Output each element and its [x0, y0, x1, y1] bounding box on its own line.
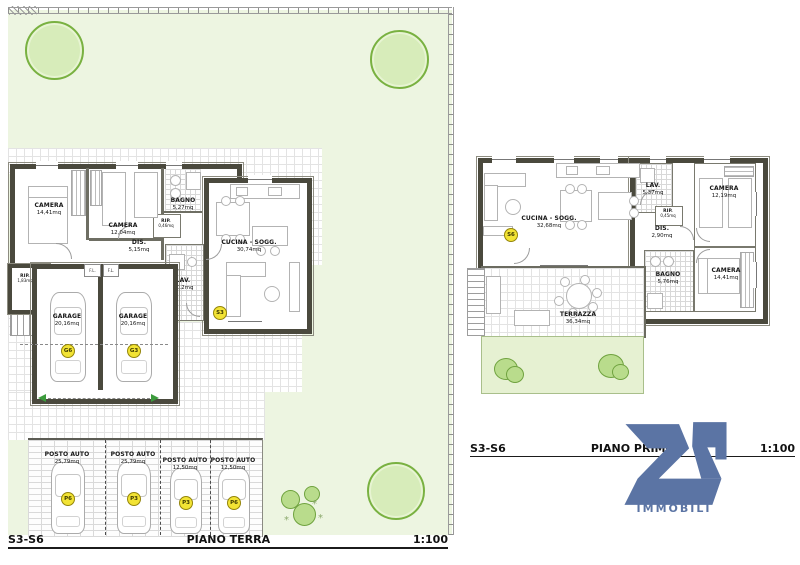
room-label: RIP. 0,45mq [655, 209, 681, 219]
kitchen-island [598, 192, 632, 220]
chair [565, 184, 575, 194]
window [248, 175, 272, 183]
window [650, 155, 666, 163]
shower [186, 172, 201, 190]
chair [580, 275, 590, 285]
window [116, 161, 138, 169]
sofa [486, 276, 501, 314]
title-rule [8, 547, 448, 549]
stool [629, 208, 639, 218]
room-label: BAGNO 5,76mq [646, 272, 690, 285]
bed [134, 172, 158, 218]
garage-door [108, 388, 156, 396]
room-label: CAMERA 14,41mq [700, 268, 752, 281]
window [166, 161, 182, 169]
tree-icon [370, 30, 429, 89]
armchair [264, 286, 280, 302]
garage-marker: G3 [127, 344, 141, 358]
window [752, 192, 760, 216]
tv-bench [289, 262, 300, 312]
titlebar-ground: S3-S6 PIANO TERRA 1:100 [8, 533, 448, 546]
stool [629, 196, 639, 206]
room-label: CAMERA 12,04mq [98, 223, 148, 236]
stairs [467, 268, 485, 336]
tree-icon [367, 462, 425, 520]
bush-icon [506, 366, 524, 383]
washer-icon [640, 168, 655, 183]
window [554, 155, 574, 163]
sink-icon [170, 175, 181, 186]
chair [221, 196, 231, 206]
unit-marker-s6: S6 [504, 228, 518, 242]
window [492, 155, 516, 163]
driveway-dashed-line [48, 398, 150, 399]
arrow-left-icon [38, 394, 46, 402]
sheet-code: S3-S6 [8, 533, 44, 546]
glass-door [228, 317, 262, 325]
window [704, 155, 730, 163]
garage-centerline [20, 344, 168, 345]
window [752, 262, 760, 288]
chair [560, 277, 570, 287]
plan-scale: 1:100 [760, 442, 795, 455]
garage-label: GARAGE 20,16mq [43, 314, 91, 327]
room-label: CUCINA - SOGG. 30,74mq [212, 240, 286, 253]
chair [554, 296, 564, 306]
room-label: CAMERA 14,41mq [26, 203, 72, 216]
sink-icon [650, 256, 661, 267]
parking-marker: P3 [179, 496, 193, 510]
parking-label: POSTO AUTO 12,50mq [157, 458, 213, 471]
sink-icon [236, 187, 248, 196]
sheet-code: S3-S6 [470, 442, 506, 455]
sink-icon [187, 257, 197, 267]
shower [647, 293, 663, 309]
fence-right [448, 7, 454, 535]
parking-marker: P6 [227, 496, 241, 510]
armchair [505, 199, 521, 215]
partition-wall [164, 211, 202, 213]
bed-pillow [28, 186, 68, 198]
plant-icon: * [312, 500, 317, 510]
bed [102, 172, 126, 226]
chair [235, 196, 245, 206]
gate-hatch [9, 6, 37, 15]
unit-marker-s3: S3 [213, 306, 227, 320]
hob-icon [268, 187, 282, 196]
chair [592, 288, 602, 298]
car-icon [116, 292, 152, 382]
tree-icon [25, 21, 84, 80]
room-label: DIS. 5,15mq [118, 240, 160, 253]
wardrobe [71, 170, 86, 216]
garage-label: GARAGE 20,16mq [109, 314, 157, 327]
wardrobe [724, 166, 754, 177]
dining-table [216, 202, 250, 236]
sink-icon [566, 166, 578, 175]
zs-logo-icon [606, 416, 746, 512]
room-label: CAMERA 12,19mq [698, 186, 750, 199]
room-label: DIS. 2,90mq [640, 226, 684, 239]
arrow-right-icon [151, 394, 159, 402]
room-label: RIP. 0,46mq [153, 219, 179, 229]
garage-marker: G6 [61, 344, 75, 358]
room-label: BAGNO 5,27mq [165, 198, 201, 211]
partition-wall [86, 168, 89, 240]
sofa [484, 185, 498, 221]
chair [577, 184, 587, 194]
parking-marker: P6 [61, 492, 75, 506]
garage-door [44, 388, 92, 396]
parking-label: POSTO AUTO 25,79mq [36, 452, 98, 465]
parking-label: POSTO AUTO 25,79mq [103, 452, 163, 465]
parking-marker: P3 [127, 492, 141, 506]
wc-icon [663, 256, 674, 267]
car-icon [50, 292, 86, 382]
stall-divider [210, 440, 211, 535]
hob-icon [596, 166, 610, 175]
fl-box: F.L. [84, 264, 101, 277]
floor-plan-sheet: CAMERA 14,41mq CAMERA 12,04mq BAGNO 5,27… [0, 0, 800, 565]
fence-top [8, 7, 452, 14]
wardrobe [90, 170, 102, 206]
fl-box: F.L. [103, 264, 119, 277]
sofa [226, 275, 241, 317]
window [600, 155, 618, 163]
plan-title: PIANO TERRA [187, 533, 271, 546]
window [36, 161, 58, 169]
bush-icon [612, 364, 629, 380]
room-label: LAV. 5,37mq [634, 183, 672, 196]
brand-name: IMMOBILI [604, 502, 744, 515]
sideboard [514, 310, 550, 326]
room-label: CUCINA - SOGG. 32,68mq [512, 216, 586, 229]
room-label: TERRAZZA 36,34mq [548, 312, 608, 325]
plant-icon: * [284, 516, 289, 526]
plan-scale: 1:100 [413, 533, 448, 546]
plant-icon: * [318, 514, 323, 524]
parking-label: POSTO AUTO 12,50mq [206, 458, 260, 471]
garage-divider-wall [98, 268, 103, 390]
